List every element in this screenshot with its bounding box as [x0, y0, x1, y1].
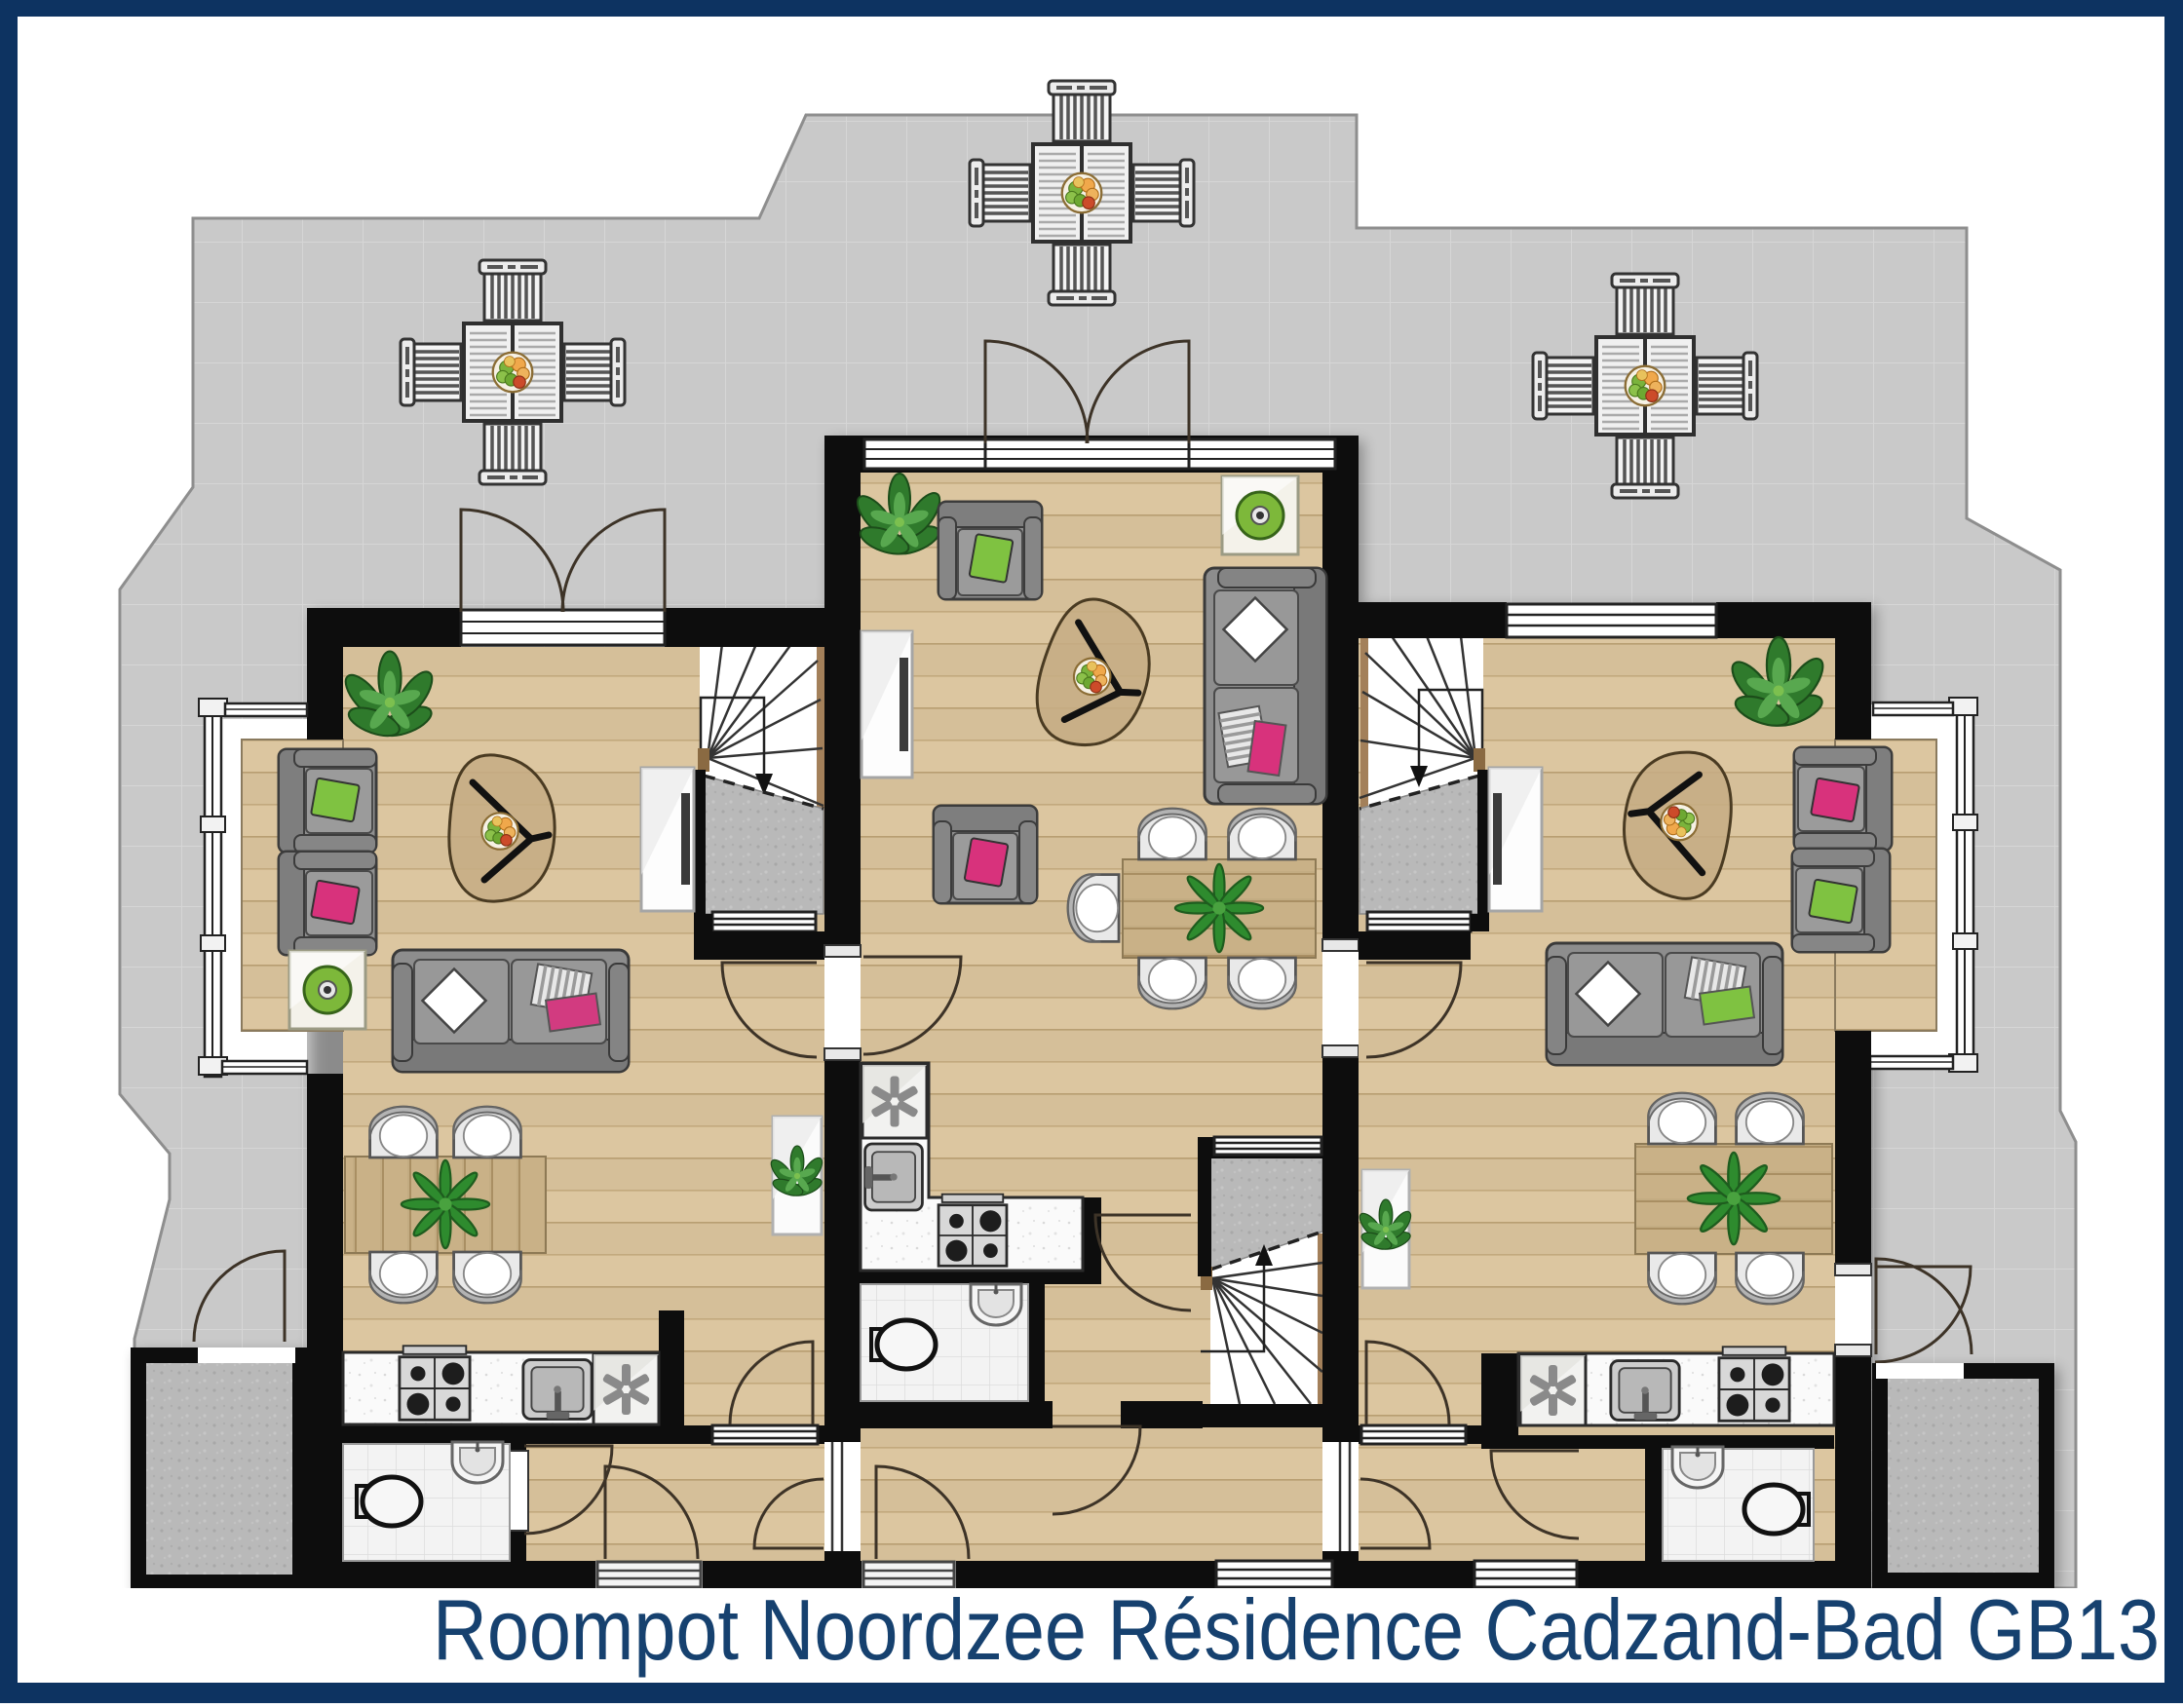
svg-text:Roompot Noordzee Résidence Cad: Roompot Noordzee Résidence Cadzand-Bad G…	[433, 1581, 2160, 1678]
